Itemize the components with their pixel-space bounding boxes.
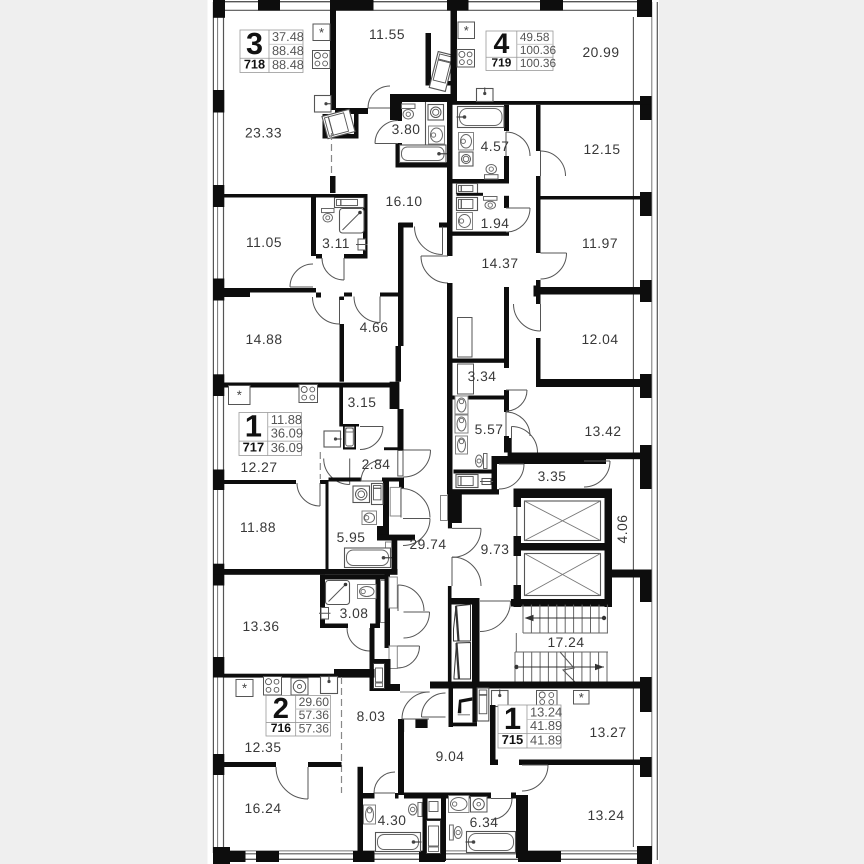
svg-text:*: *: [464, 23, 469, 38]
svg-text:14.37: 14.37: [481, 256, 518, 271]
svg-text:5.57: 5.57: [475, 422, 504, 437]
svg-text:12.27: 12.27: [240, 460, 277, 475]
svg-text:13.42: 13.42: [584, 424, 621, 439]
svg-text:23.33: 23.33: [245, 126, 282, 141]
svg-text:716: 716: [271, 721, 292, 735]
svg-text:3.08: 3.08: [340, 606, 369, 621]
svg-text:9.04: 9.04: [436, 749, 465, 764]
svg-text:4.30: 4.30: [378, 813, 407, 828]
svg-text:12.15: 12.15: [583, 142, 620, 157]
svg-text:11.97: 11.97: [582, 236, 618, 251]
svg-text:5.95: 5.95: [337, 530, 366, 545]
svg-text:*: *: [579, 690, 584, 705]
svg-text:3.35: 3.35: [538, 469, 567, 484]
svg-text:4.57: 4.57: [481, 139, 510, 154]
svg-text:13.36: 13.36: [242, 619, 279, 634]
svg-text:17.24: 17.24: [547, 635, 584, 650]
svg-text:*: *: [242, 681, 247, 696]
svg-text:719: 719: [492, 56, 512, 70]
svg-text:13.24: 13.24: [587, 808, 624, 823]
svg-text:36.09: 36.09: [271, 440, 303, 455]
svg-text:4.66: 4.66: [360, 320, 389, 335]
svg-text:57.36: 57.36: [299, 722, 330, 736]
svg-text:*: *: [319, 25, 324, 40]
svg-text:3.34: 3.34: [468, 369, 497, 384]
svg-text:57.36: 57.36: [299, 708, 330, 722]
svg-text:11.55: 11.55: [369, 27, 405, 42]
svg-text:20.99: 20.99: [582, 45, 619, 60]
svg-text:29.74: 29.74: [409, 537, 446, 552]
svg-text:*: *: [237, 388, 242, 403]
svg-text:14.88: 14.88: [245, 332, 282, 347]
svg-text:16.10: 16.10: [385, 194, 422, 209]
svg-text:41.89: 41.89: [530, 733, 562, 748]
svg-text:9.73: 9.73: [481, 542, 510, 557]
svg-text:12.04: 12.04: [581, 332, 618, 347]
svg-text:8.03: 8.03: [357, 709, 386, 724]
svg-text:36.09: 36.09: [271, 426, 303, 441]
svg-text:11.88: 11.88: [240, 520, 276, 535]
svg-text:11.05: 11.05: [246, 235, 282, 250]
svg-text:13.27: 13.27: [589, 725, 626, 740]
svg-text:12.35: 12.35: [244, 740, 281, 755]
svg-text:41.89: 41.89: [530, 718, 562, 733]
svg-text:3.11: 3.11: [322, 236, 350, 251]
svg-text:718: 718: [244, 56, 265, 71]
svg-text:715: 715: [502, 732, 524, 747]
svg-text:4.06: 4.06: [615, 515, 630, 544]
svg-text:717: 717: [243, 439, 265, 454]
svg-text:3.15: 3.15: [348, 395, 377, 410]
svg-text:100.36: 100.36: [520, 56, 557, 70]
svg-text:88.48: 88.48: [272, 57, 304, 72]
svg-text:100.36: 100.36: [520, 43, 557, 57]
svg-text:6.34: 6.34: [470, 815, 499, 830]
svg-text:16.24: 16.24: [244, 801, 281, 816]
svg-text:1: 1: [504, 701, 521, 736]
svg-text:88.48: 88.48: [272, 43, 304, 58]
svg-text:1: 1: [245, 409, 262, 444]
svg-text:2.84: 2.84: [362, 457, 391, 472]
svg-text:3.80: 3.80: [392, 122, 421, 137]
svg-text:1.94: 1.94: [481, 216, 510, 231]
